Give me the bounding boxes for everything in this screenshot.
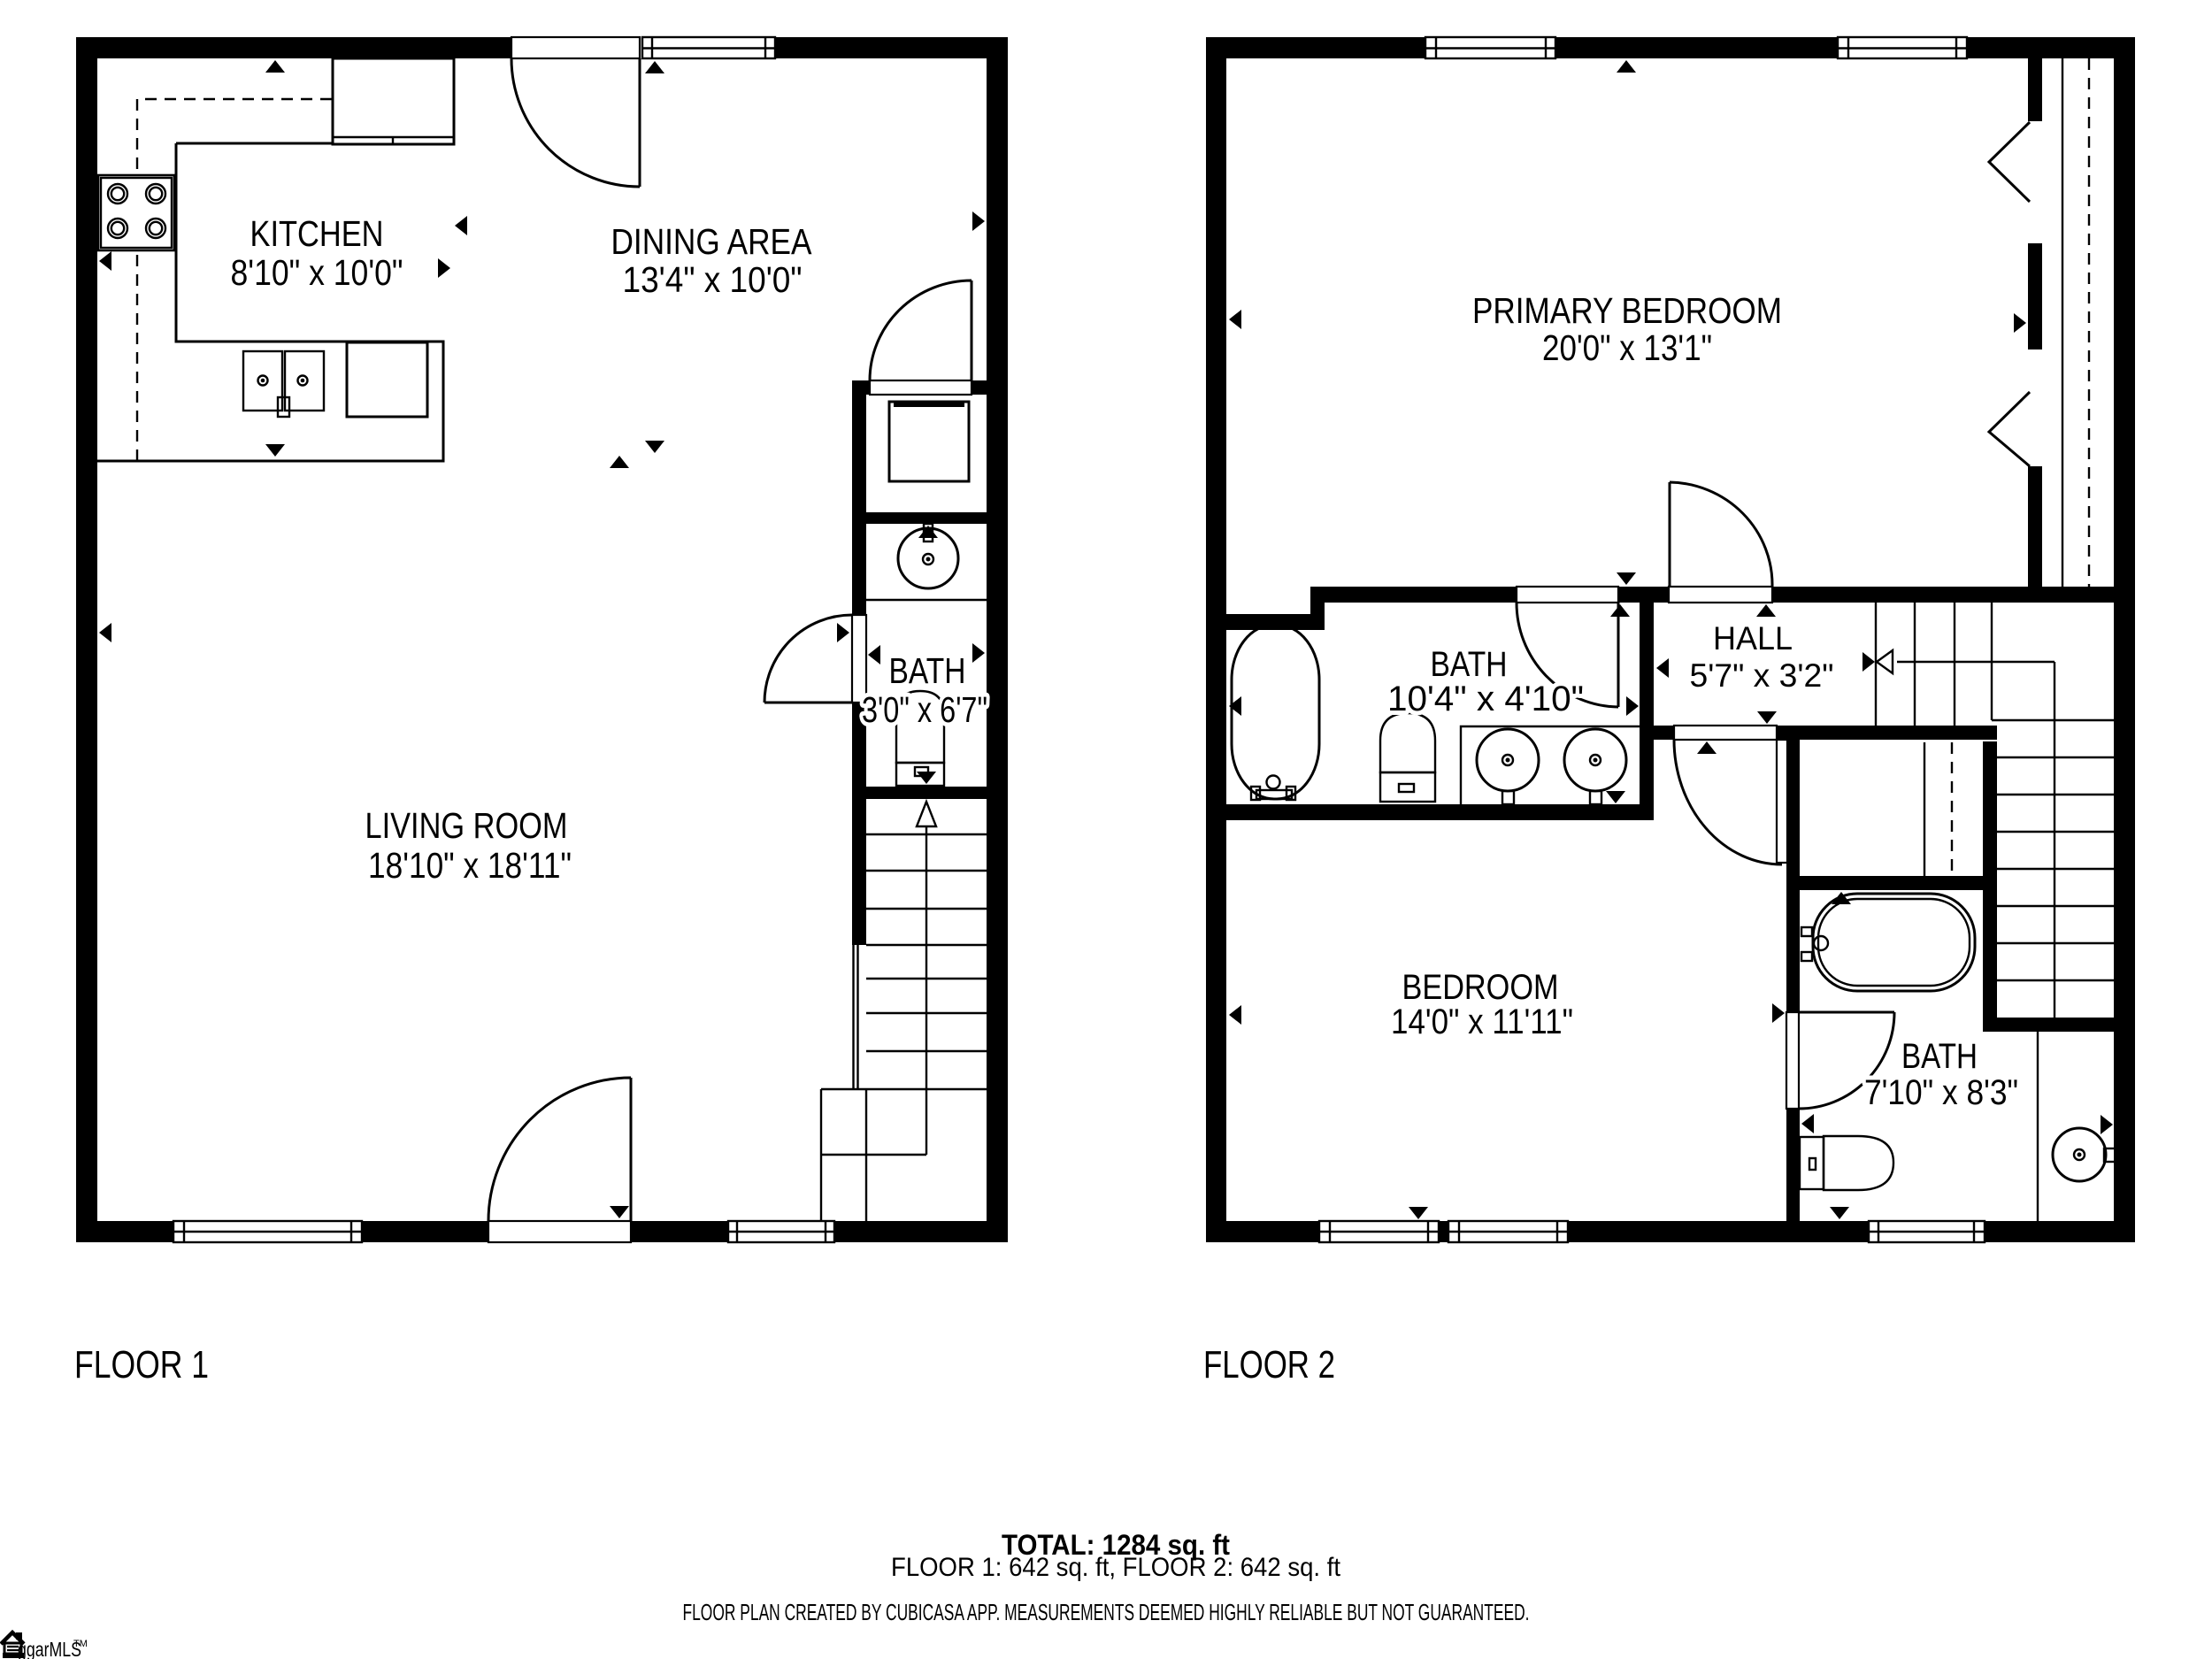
svg-text:13'4" x 10'0": 13'4" x 10'0" xyxy=(623,259,803,300)
svg-text:ggarMLS: ggarMLS xyxy=(18,1638,81,1659)
svg-text:20'0" x 13'1": 20'0" x 13'1" xyxy=(1542,327,1712,368)
svg-text:BATH: BATH xyxy=(889,650,966,691)
svg-text:3'0" x 6'7": 3'0" x 6'7" xyxy=(862,689,987,730)
svg-text:PRIMARY BEDROOM: PRIMARY BEDROOM xyxy=(1472,290,1782,331)
svg-text:BEDROOM: BEDROOM xyxy=(1402,968,1559,1007)
svg-text:FLOOR PLAN CREATED BY CUBICASA: FLOOR PLAN CREATED BY CUBICASA APP. MEAS… xyxy=(683,1599,1530,1625)
svg-text:FLOOR 1: 642 sq. ft, FLOOR 2:: FLOOR 1: 642 sq. ft, FLOOR 2: 642 sq. ft xyxy=(891,1553,1341,1582)
svg-text:KITCHEN: KITCHEN xyxy=(250,213,384,254)
svg-text:10'4" x 4'10": 10'4" x 4'10" xyxy=(1387,680,1584,718)
svg-text:8'10" x 10'0": 8'10" x 10'0" xyxy=(231,252,403,293)
svg-text:HALL: HALL xyxy=(1713,620,1793,657)
svg-text:TM: TM xyxy=(73,1639,88,1649)
svg-text:FLOOR 1: FLOOR 1 xyxy=(74,1343,209,1386)
svg-text:FLOOR 2: FLOOR 2 xyxy=(1203,1343,1335,1386)
svg-text:BATH: BATH xyxy=(1431,645,1508,684)
svg-text:14'0" x 11'11": 14'0" x 11'11" xyxy=(1391,1002,1573,1041)
svg-text:BATH: BATH xyxy=(1901,1037,1978,1076)
svg-text:DINING AREA: DINING AREA xyxy=(611,221,813,262)
svg-text:7'10" x 8'3": 7'10" x 8'3" xyxy=(1864,1073,2018,1112)
svg-text:LIVING ROOM: LIVING ROOM xyxy=(365,805,568,846)
svg-text:18'10" x 18'11": 18'10" x 18'11" xyxy=(368,845,572,886)
svg-text:5'7" x 3'2": 5'7" x 3'2" xyxy=(1690,657,1834,694)
